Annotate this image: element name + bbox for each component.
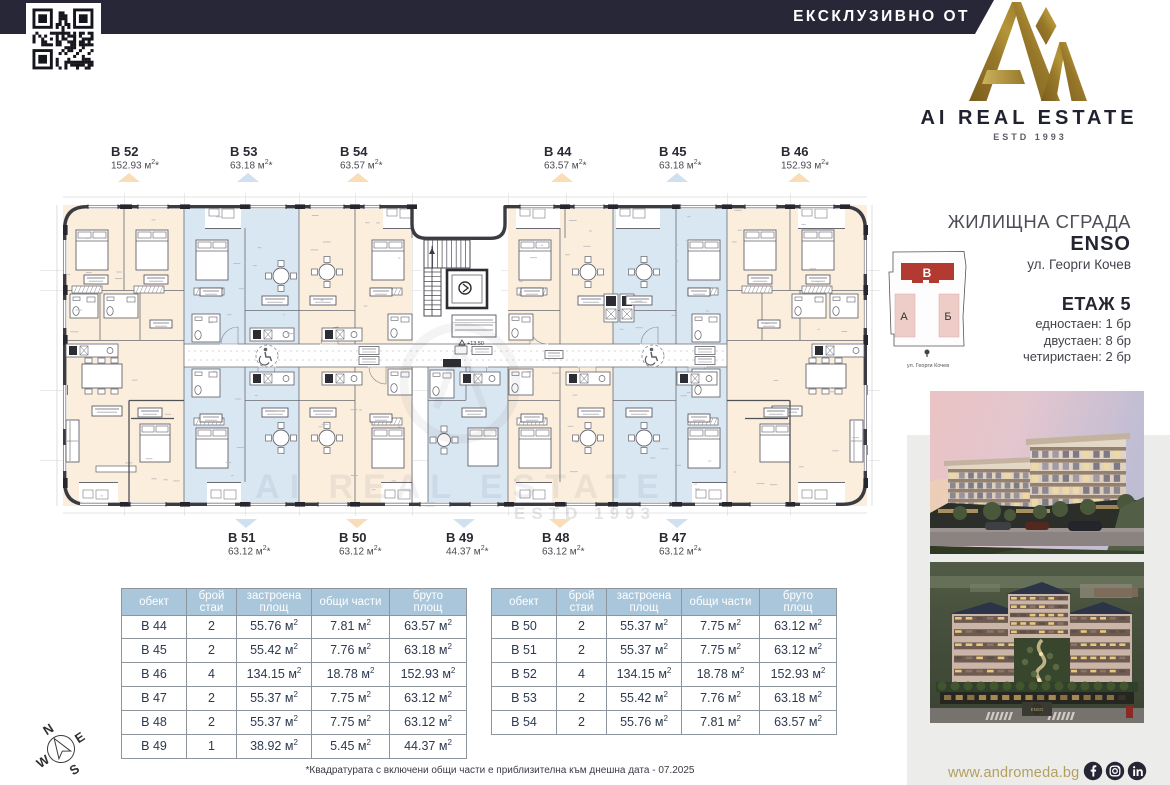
svg-text:E: E [72, 729, 88, 746]
svg-text:AI REAL ESTATE: AI REAL ESTATE [255, 468, 669, 506]
svg-text:ENSO: ENSO [1031, 707, 1044, 712]
svg-text:W: W [34, 751, 53, 771]
svg-text:S: S [67, 761, 83, 778]
svg-text:+13.50: +13.50 [467, 341, 484, 347]
svg-text:N: N [40, 720, 56, 738]
